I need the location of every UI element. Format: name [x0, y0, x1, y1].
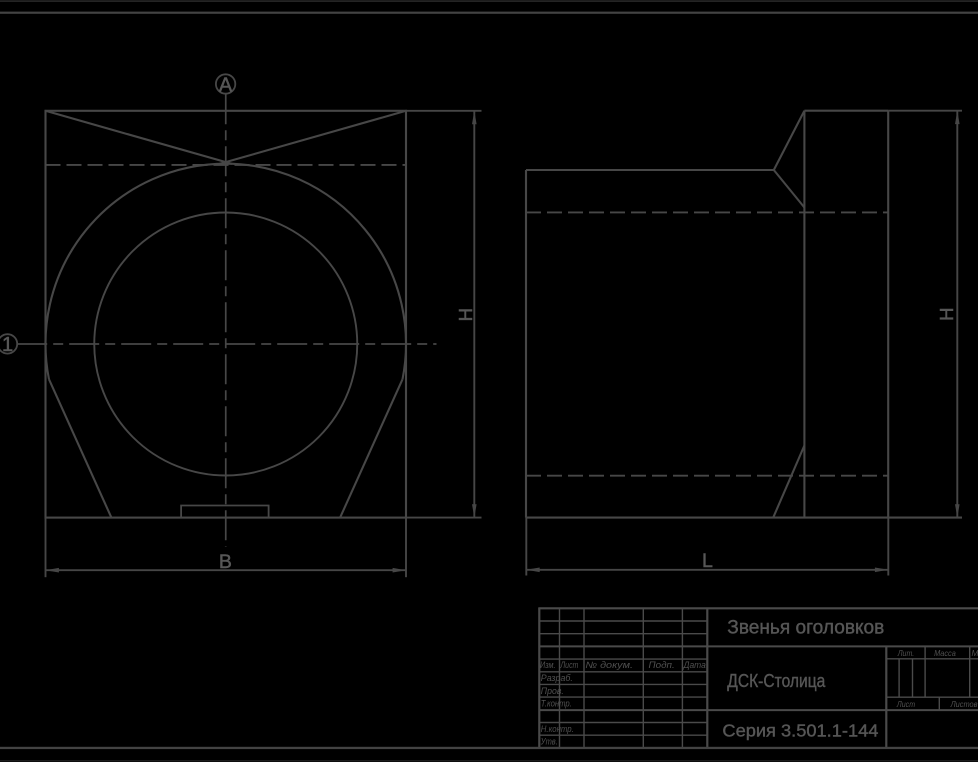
svg-text:Т.контр.: Т.контр. [541, 699, 572, 709]
svg-text:А: А [219, 74, 233, 96]
svg-text:Изм.: Изм. [540, 660, 556, 670]
svg-text:Н.контр.: Н.контр. [541, 724, 574, 734]
svg-text:Разраб.: Разраб. [541, 673, 573, 683]
svg-text:Утв.: Утв. [540, 737, 558, 747]
svg-text:Подп.: Подп. [649, 660, 675, 670]
svg-text:Пров.: Пров. [541, 686, 564, 696]
svg-text:Масса: Масса [934, 648, 956, 658]
svg-text:Лист: Лист [896, 699, 915, 709]
svg-text:L: L [702, 550, 713, 572]
svg-text:Дата: Дата [683, 660, 706, 670]
svg-text:Серия 3.501.1-144: Серия 3.501.1-144 [722, 721, 878, 741]
svg-text:Звенья оголовков: Звенья оголовков [727, 617, 884, 638]
svg-text:1: 1 [2, 334, 13, 356]
svg-text:Листов: Листов [950, 699, 978, 709]
svg-text:H: H [455, 308, 476, 321]
svg-text:ДСК-Столица: ДСК-Столица [727, 671, 826, 691]
svg-text:B: B [219, 551, 232, 573]
svg-text:Масштаб: Масштаб [972, 648, 978, 658]
svg-text:Лист: Лист [560, 660, 579, 670]
svg-text:H: H [936, 308, 957, 321]
svg-text:Лит.: Лит. [897, 648, 914, 658]
svg-text:№ докум.: № докум. [585, 660, 633, 670]
